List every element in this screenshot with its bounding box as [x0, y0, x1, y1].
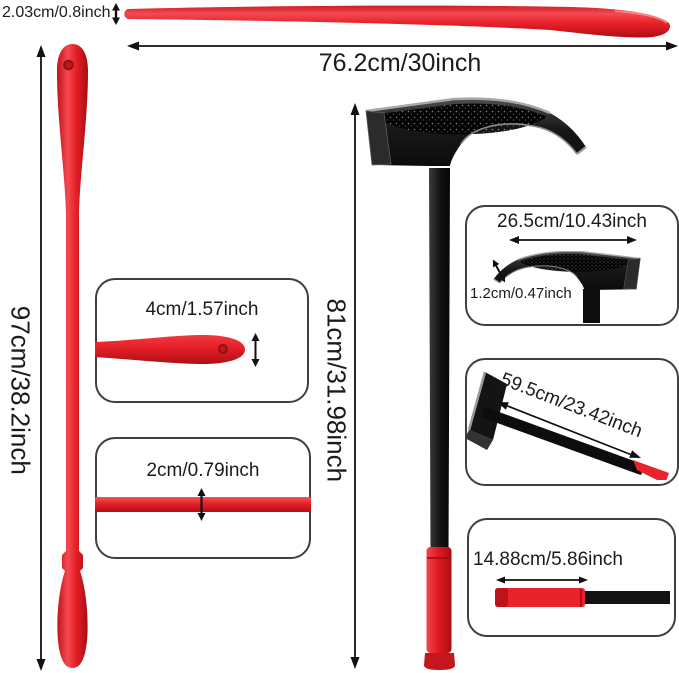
spoon-tip-width-label: 4cm/1.57inch: [97, 300, 307, 321]
hammer-handle-stub: [583, 289, 600, 323]
tire-spoon-horizontal-image: [120, 2, 679, 44]
left-spoon-length-label: 97cm/38.2inch: [6, 304, 35, 476]
hammer-head: [366, 99, 586, 166]
grip-length-label: 14.88cm/5.86inch: [473, 550, 623, 571]
spoon-lever-body: [124, 6, 670, 38]
callout-grip-length: 14.88cm/5.86inch: [467, 518, 676, 637]
grip-closeup-image: [493, 586, 670, 610]
blade-thickness-label: 1.2cm/0.47inch: [470, 286, 572, 303]
hammer-grip-cap: [424, 653, 455, 670]
rod-diameter-label: 2cm/0.79inch: [97, 461, 309, 482]
top-spoon-length-label: 76.2cm/30inch: [250, 50, 550, 78]
grip-red: [495, 588, 585, 607]
dimension-arrow-grip-length: [495, 574, 589, 586]
double-arrow-diagonal-icon: [487, 257, 511, 285]
callout-spoon-tip: 4cm/1.57inch: [95, 278, 309, 403]
spoon-tip-hole: [219, 345, 227, 353]
dimension-arrow-left-length: [34, 44, 48, 672]
double-arrow-vertical-icon: [195, 488, 208, 521]
callout-handle-length: 59.5cm/23.42inch: [465, 358, 679, 486]
spoon-lever-body-vertical: [57, 44, 88, 668]
hammer-length-label: 81cm/31.98inch: [322, 295, 351, 485]
hammer-grip: [427, 547, 452, 653]
handle-rod: [579, 591, 670, 604]
double-arrow-vertical-icon: [249, 332, 262, 368]
dimension-arrow-head-length: [508, 234, 638, 246]
callout-hammer-head: 26.5cm/10.43inch 1.2cm/0.47inch: [465, 205, 679, 326]
product-dimension-diagram: 2.03cm/0.8inch 76.2cm/30inch 97cm/38.2in…: [0, 0, 679, 673]
spoon-hole: [64, 61, 73, 70]
top-spoon-thickness-label: 2.03cm/0.8inch: [2, 4, 111, 22]
hammer-handle: [429, 168, 450, 553]
grip-end-cap: [495, 588, 508, 607]
tire-spoon-vertical-image: [50, 41, 95, 673]
callout-rod-diameter: 2cm/0.79inch: [95, 437, 311, 559]
grip-tip-red: [633, 460, 669, 480]
spoon-tip-image: [95, 332, 255, 367]
hammer-head-length-label: 26.5cm/10.43inch: [467, 212, 677, 233]
double-arrow-vertical-icon: [110, 3, 122, 25]
